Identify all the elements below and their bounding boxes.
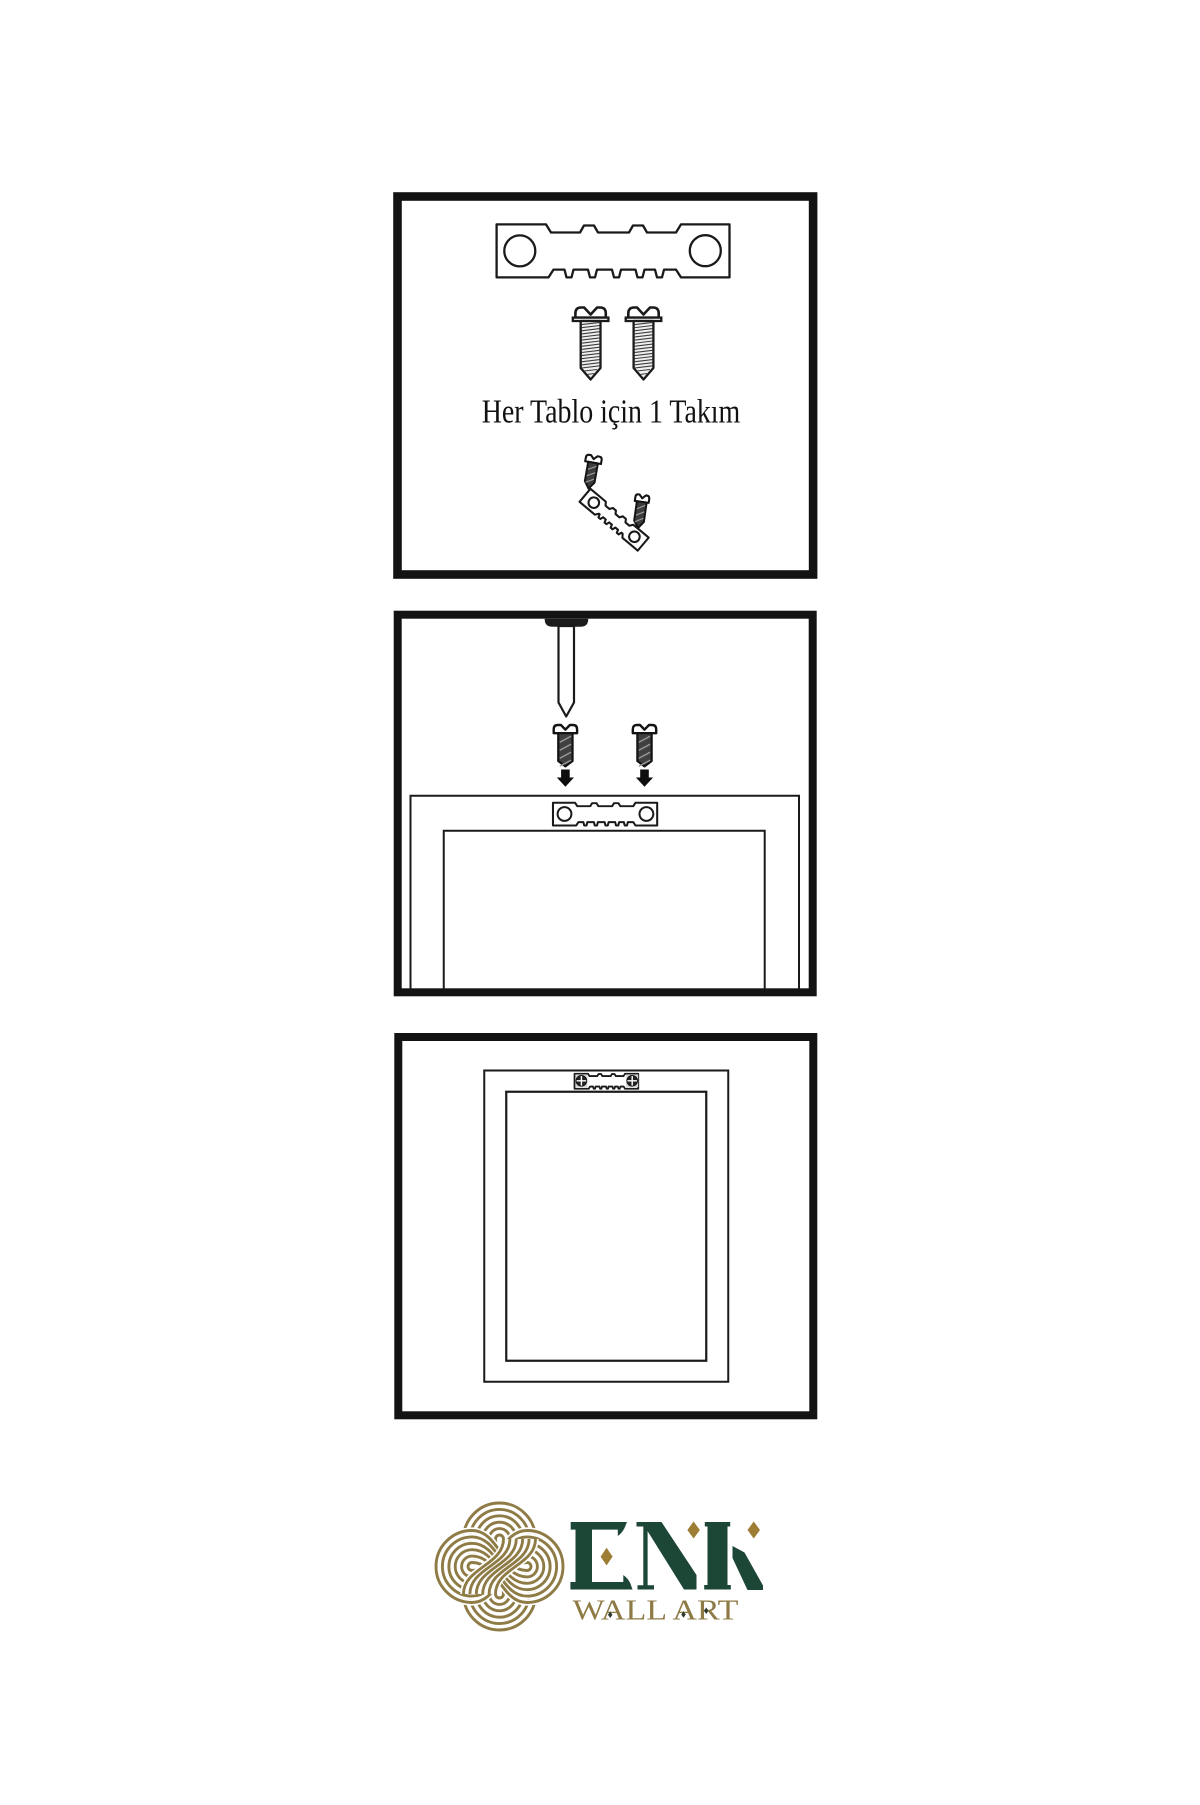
- svg-text:WALL ART: WALL ART: [573, 1596, 739, 1627]
- svg-text:Her Tablo için 1 Takım: Her Tablo için 1 Takım: [482, 394, 741, 431]
